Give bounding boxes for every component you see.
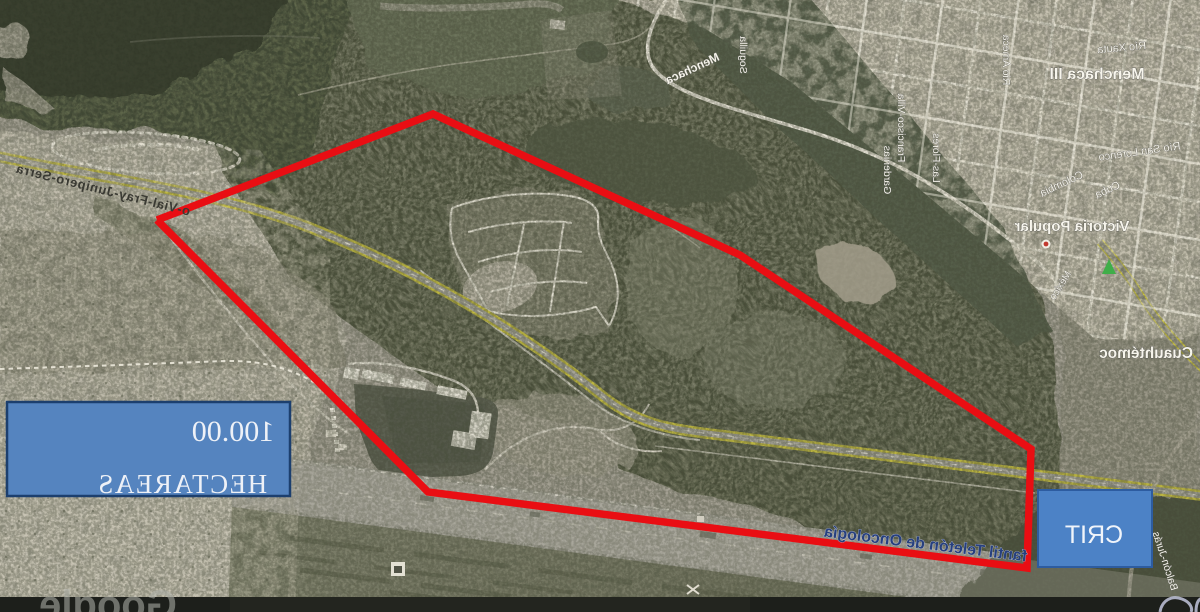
svg-text:Google: Google xyxy=(39,583,177,612)
svg-text:Soguilla: Soguilla xyxy=(737,36,749,74)
svg-text:Cuauhtémoc: Cuauhtémoc xyxy=(1099,345,1193,362)
svg-text:Las-Flores: Las-Flores xyxy=(930,133,942,183)
svg-text:100.00: 100.00 xyxy=(192,415,275,448)
svg-text:Victoria Popular: Victoria Popular xyxy=(1014,218,1129,235)
svg-text:Gardenias: Gardenias xyxy=(881,146,893,194)
svg-text:Menchaca III: Menchaca III xyxy=(1049,66,1144,83)
svg-text:HECTAREAS: HECTAREAS xyxy=(97,469,267,499)
svg-text:CRIT: CRIT xyxy=(1065,521,1123,549)
svg-text:Rio Ameca: Rio Ameca xyxy=(1000,34,1012,85)
svg-text:Francisco-Villa: Francisco-Villa xyxy=(895,94,907,163)
